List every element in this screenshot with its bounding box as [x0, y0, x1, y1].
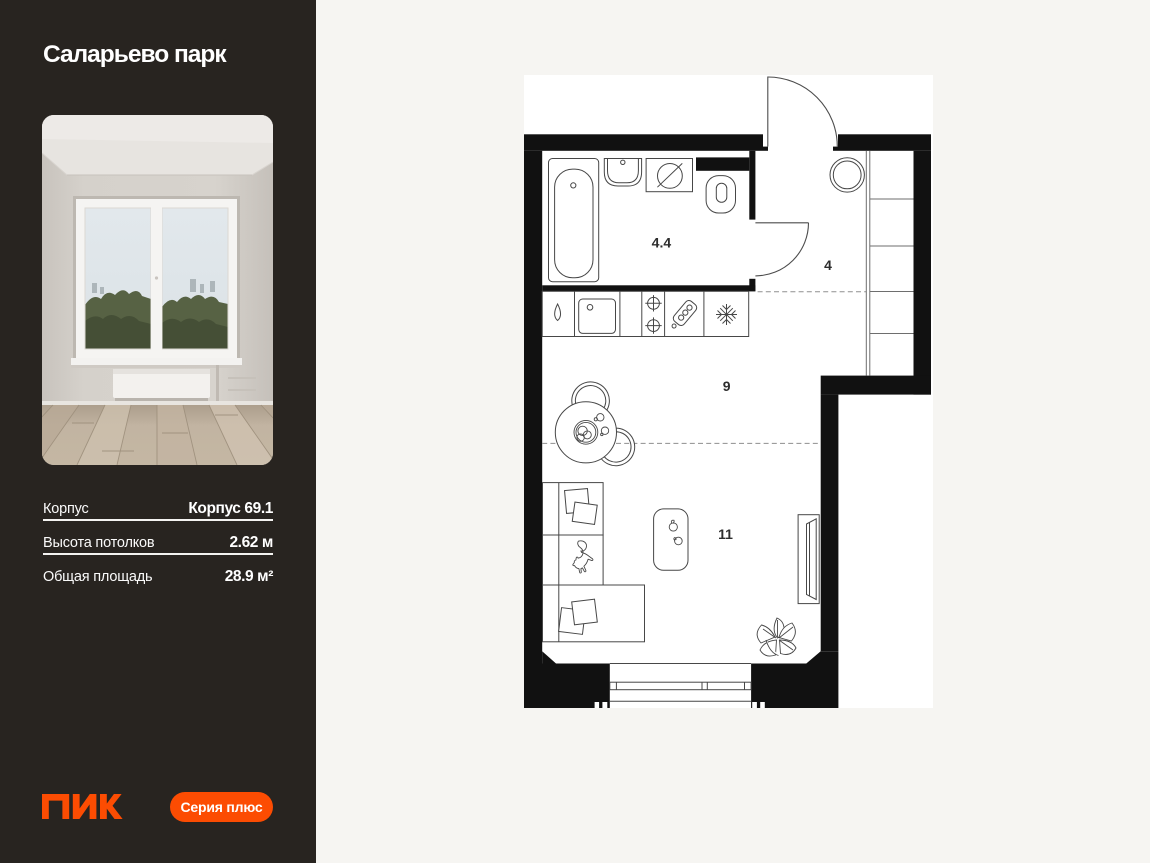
svg-text:4: 4	[824, 257, 832, 273]
svg-text:9: 9	[723, 378, 731, 394]
svg-text:4.4: 4.4	[652, 235, 672, 251]
svg-text:11: 11	[718, 526, 733, 542]
